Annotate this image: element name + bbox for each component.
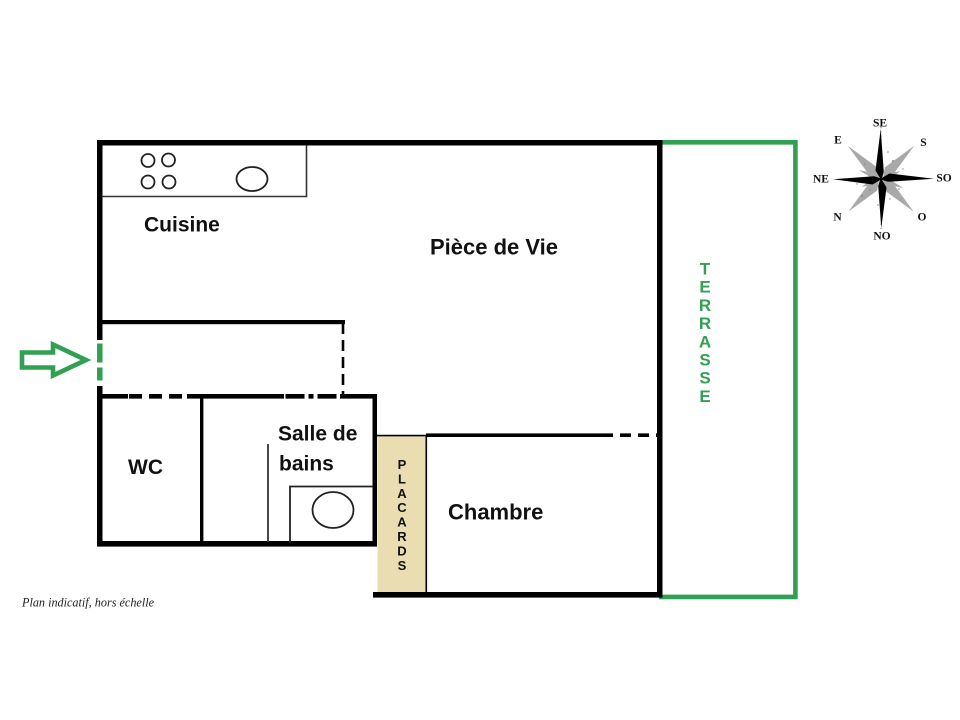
svg-text:A: A — [699, 332, 711, 351]
svg-text:D: D — [397, 543, 406, 558]
svg-text:R: R — [699, 296, 711, 315]
svg-text:SO: SO — [936, 173, 951, 185]
svg-text:R: R — [699, 314, 711, 333]
svg-text:Plan indicatif, hors échelle: Plan indicatif, hors échelle — [21, 596, 155, 610]
svg-text:bains: bains — [279, 453, 334, 476]
svg-text:S: S — [699, 369, 710, 388]
svg-text:R: R — [397, 529, 407, 544]
svg-text:NO: NO — [873, 231, 890, 243]
svg-text:WC: WC — [128, 456, 163, 479]
svg-text:S: S — [920, 137, 926, 149]
svg-text:P: P — [398, 457, 407, 472]
svg-text:Chambre: Chambre — [448, 500, 543, 525]
svg-text:S: S — [398, 558, 407, 573]
svg-text:E: E — [699, 387, 710, 406]
svg-text:T: T — [700, 260, 711, 279]
svg-text:Salle de: Salle de — [278, 423, 357, 446]
svg-text:A: A — [397, 515, 407, 530]
svg-text:C: C — [397, 500, 407, 515]
svg-text:Cuisine: Cuisine — [144, 214, 220, 237]
svg-text:A: A — [397, 486, 407, 501]
svg-text:NE: NE — [813, 174, 829, 186]
svg-text:Pièce de Vie: Pièce de Vie — [430, 235, 558, 260]
svg-text:L: L — [398, 471, 406, 486]
svg-text:N: N — [833, 212, 842, 224]
svg-text:S: S — [699, 351, 710, 370]
svg-text:SE: SE — [873, 118, 887, 130]
svg-text:E: E — [699, 278, 710, 297]
svg-text:E: E — [834, 135, 842, 147]
svg-text:O: O — [918, 212, 927, 224]
